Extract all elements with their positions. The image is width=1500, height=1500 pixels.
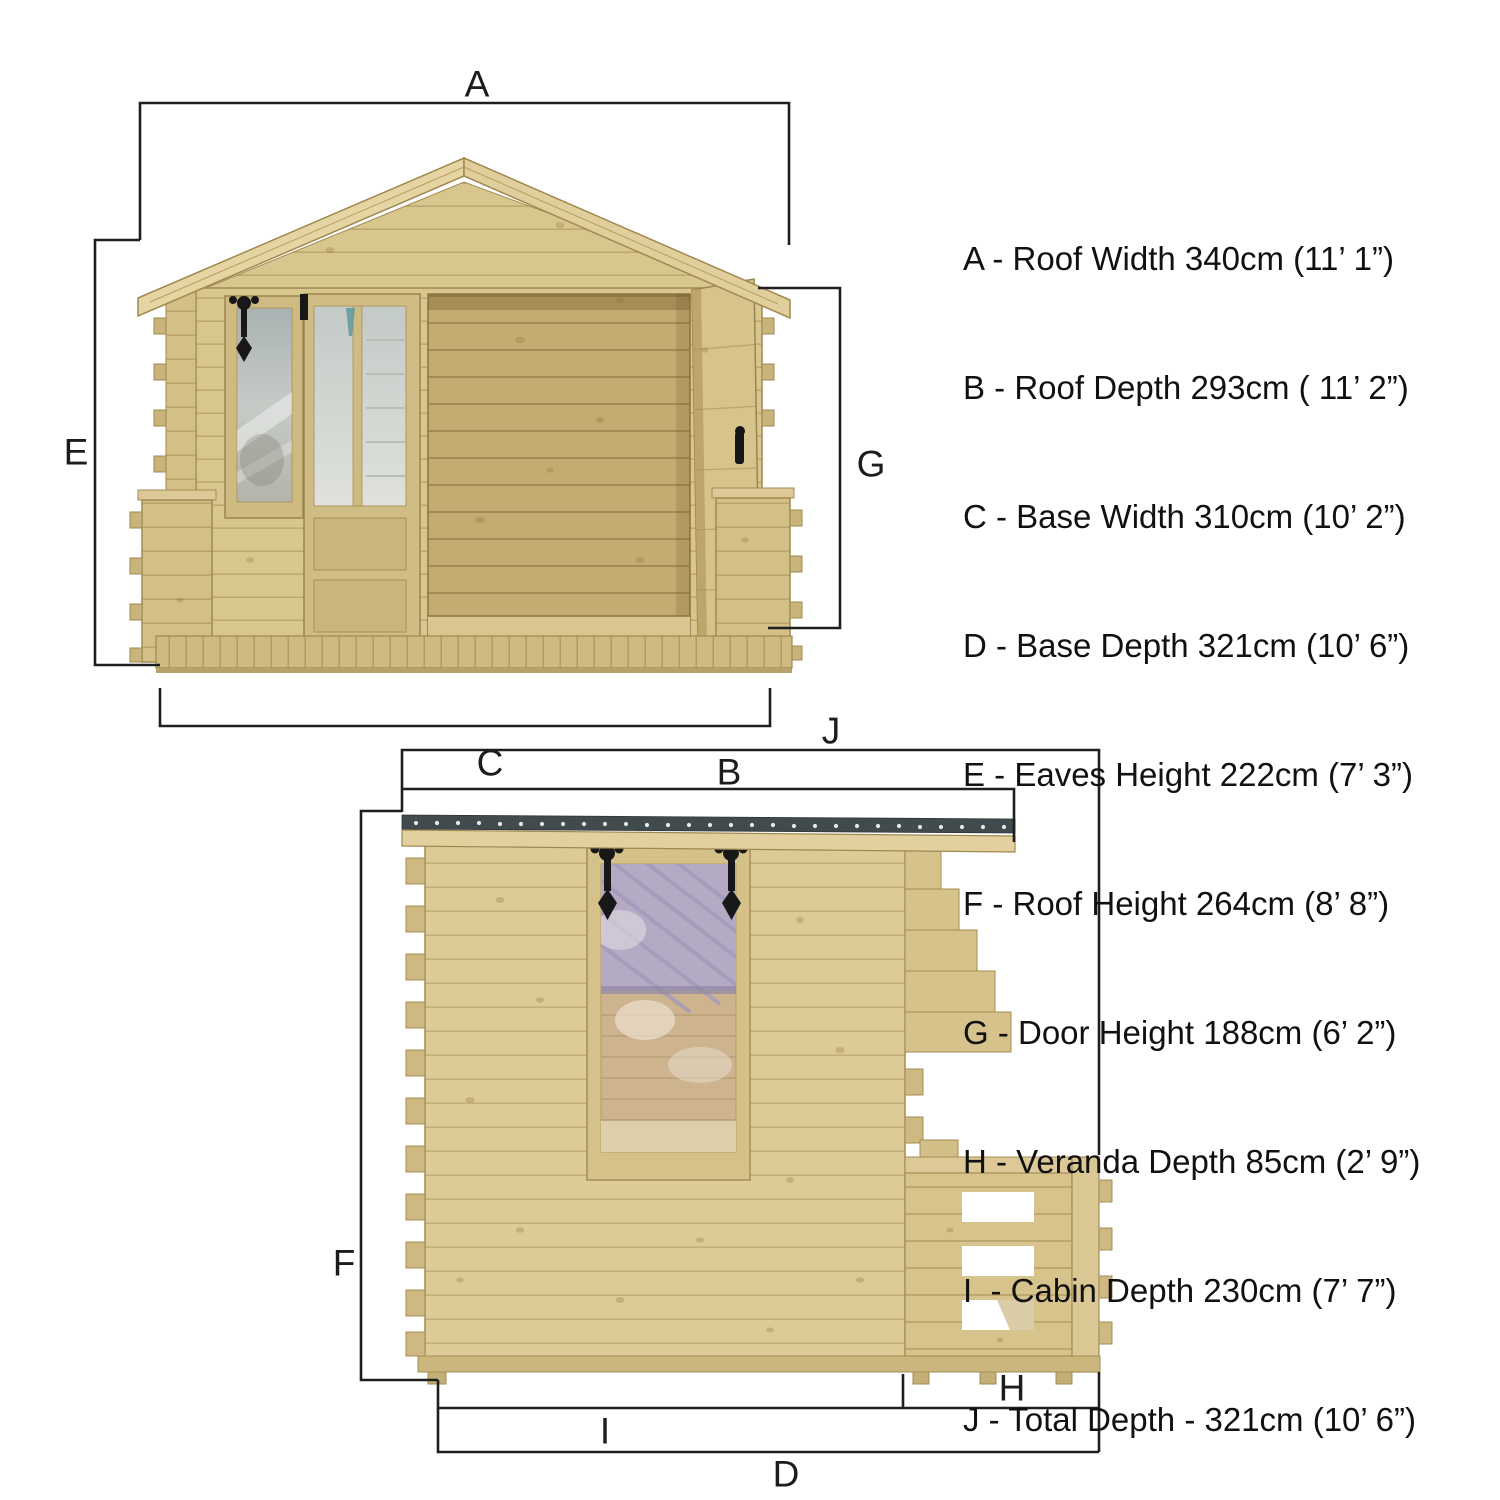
dim-label-f: F bbox=[333, 1245, 356, 1282]
dim-label-b: B bbox=[717, 754, 742, 791]
legend-row-g: G - Door Height 188cm (6’ 2”) bbox=[963, 1011, 1420, 1054]
front-open-doorway bbox=[428, 294, 690, 640]
log-notch bbox=[154, 456, 166, 472]
log-notch bbox=[154, 364, 166, 380]
doorway-top-shadow bbox=[428, 294, 690, 310]
dim-c-bracket bbox=[160, 688, 770, 726]
door-hinge-icon bbox=[300, 294, 308, 320]
veranda-ledge bbox=[920, 1140, 958, 1157]
front-left-log-ends bbox=[166, 292, 196, 496]
legend-row-a: A - Roof Width 340cm (11’ 1”) bbox=[963, 237, 1420, 280]
side-roof bbox=[402, 815, 1015, 852]
legend-row-c: C - Base Width 310cm (10’ 2”) bbox=[963, 495, 1420, 538]
legend-row-d: D - Base Depth 321cm (10’ 6”) bbox=[963, 624, 1420, 667]
dim-label-a: A bbox=[465, 66, 490, 103]
log-notch bbox=[154, 410, 166, 426]
front-window bbox=[225, 296, 303, 518]
door-panel bbox=[314, 580, 406, 632]
side-left-log-ends bbox=[406, 858, 425, 1356]
doorway-jamb-shadow bbox=[676, 294, 690, 640]
legend-row-h: H - Veranda Depth 85cm (2’ 9”) bbox=[963, 1140, 1420, 1183]
legend-row-j: J - Total Depth - 321cm (10’ 6”) bbox=[963, 1398, 1420, 1441]
dim-label-e: E bbox=[64, 434, 89, 471]
dim-label-c: C bbox=[477, 745, 504, 782]
legend-row-e: E - Eaves Height 222cm (7’ 3”) bbox=[963, 753, 1420, 796]
dim-label-d: D bbox=[773, 1456, 800, 1493]
dim-label-g: G bbox=[857, 446, 886, 483]
front-deck bbox=[156, 636, 792, 673]
legend-row-b: B - Roof Depth 293cm ( 11’ 2”) bbox=[963, 366, 1420, 409]
log-notch bbox=[762, 364, 774, 380]
door-glass-mullion bbox=[353, 306, 362, 506]
front-elevation bbox=[130, 158, 802, 673]
door-panel bbox=[314, 518, 406, 570]
side-window bbox=[586, 845, 752, 1181]
door-handle-icon bbox=[735, 426, 745, 464]
dim-label-j: J bbox=[822, 713, 841, 750]
log-notch bbox=[762, 318, 774, 334]
log-notch bbox=[154, 318, 166, 334]
legend-row-f: F - Roof Height 264cm (8’ 8”) bbox=[963, 882, 1420, 925]
cabin-dimension-diagram: A E G C J B F H I D A - Roof Width 340cm… bbox=[0, 0, 1500, 1500]
front-glazed-door bbox=[300, 294, 420, 640]
log-notch bbox=[762, 410, 774, 426]
dimension-legend: A - Roof Width 340cm (11’ 1”) B - Roof D… bbox=[963, 151, 1420, 1500]
legend-row-i: I - Cabin Depth 230cm (7’ 7”) bbox=[963, 1269, 1420, 1312]
dim-label-i: I bbox=[600, 1413, 610, 1450]
